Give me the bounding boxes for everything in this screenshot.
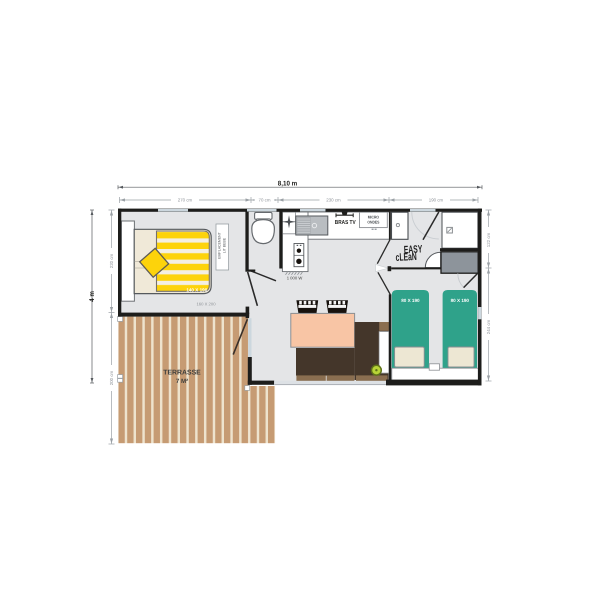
svg-text:80 X 190: 80 X 190 [401, 298, 420, 303]
svg-text:ONDES: ONDES [367, 220, 379, 225]
svg-text:220 cm: 220 cm [109, 253, 114, 268]
svg-text:230 cm: 230 cm [326, 198, 341, 203]
svg-text:TERRASSE: TERRASSE [163, 370, 201, 377]
svg-text:244 cm: 244 cm [486, 319, 491, 334]
svg-text:122 cm: 122 cm [486, 232, 491, 247]
svg-text:7 M²: 7 M² [176, 378, 188, 385]
svg-text:1 000 W: 1 000 W [287, 276, 303, 281]
svg-text:80 X 190: 80 X 190 [451, 298, 470, 303]
svg-text:LIT BEBE: LIT BEBE [223, 237, 227, 253]
svg-text:4 m: 4 m [89, 291, 96, 302]
svg-text:140 X 190: 140 X 190 [186, 287, 207, 292]
svg-text:BRAS TV: BRAS TV [335, 219, 356, 226]
svg-text:70 cm: 70 cm [259, 198, 271, 203]
svg-text:8,10 m: 8,10 m [278, 180, 297, 187]
svg-text:270 cm: 270 cm [178, 198, 193, 203]
svg-text:EMPLACEMENT: EMPLACEMENT [218, 231, 222, 259]
svg-text:160 X 200: 160 X 200 [196, 302, 216, 307]
svg-text:200 cm: 200 cm [109, 370, 114, 385]
svg-text:190 cm: 190 cm [429, 198, 444, 203]
svg-text:cLEaN: cLEaN [395, 251, 417, 264]
